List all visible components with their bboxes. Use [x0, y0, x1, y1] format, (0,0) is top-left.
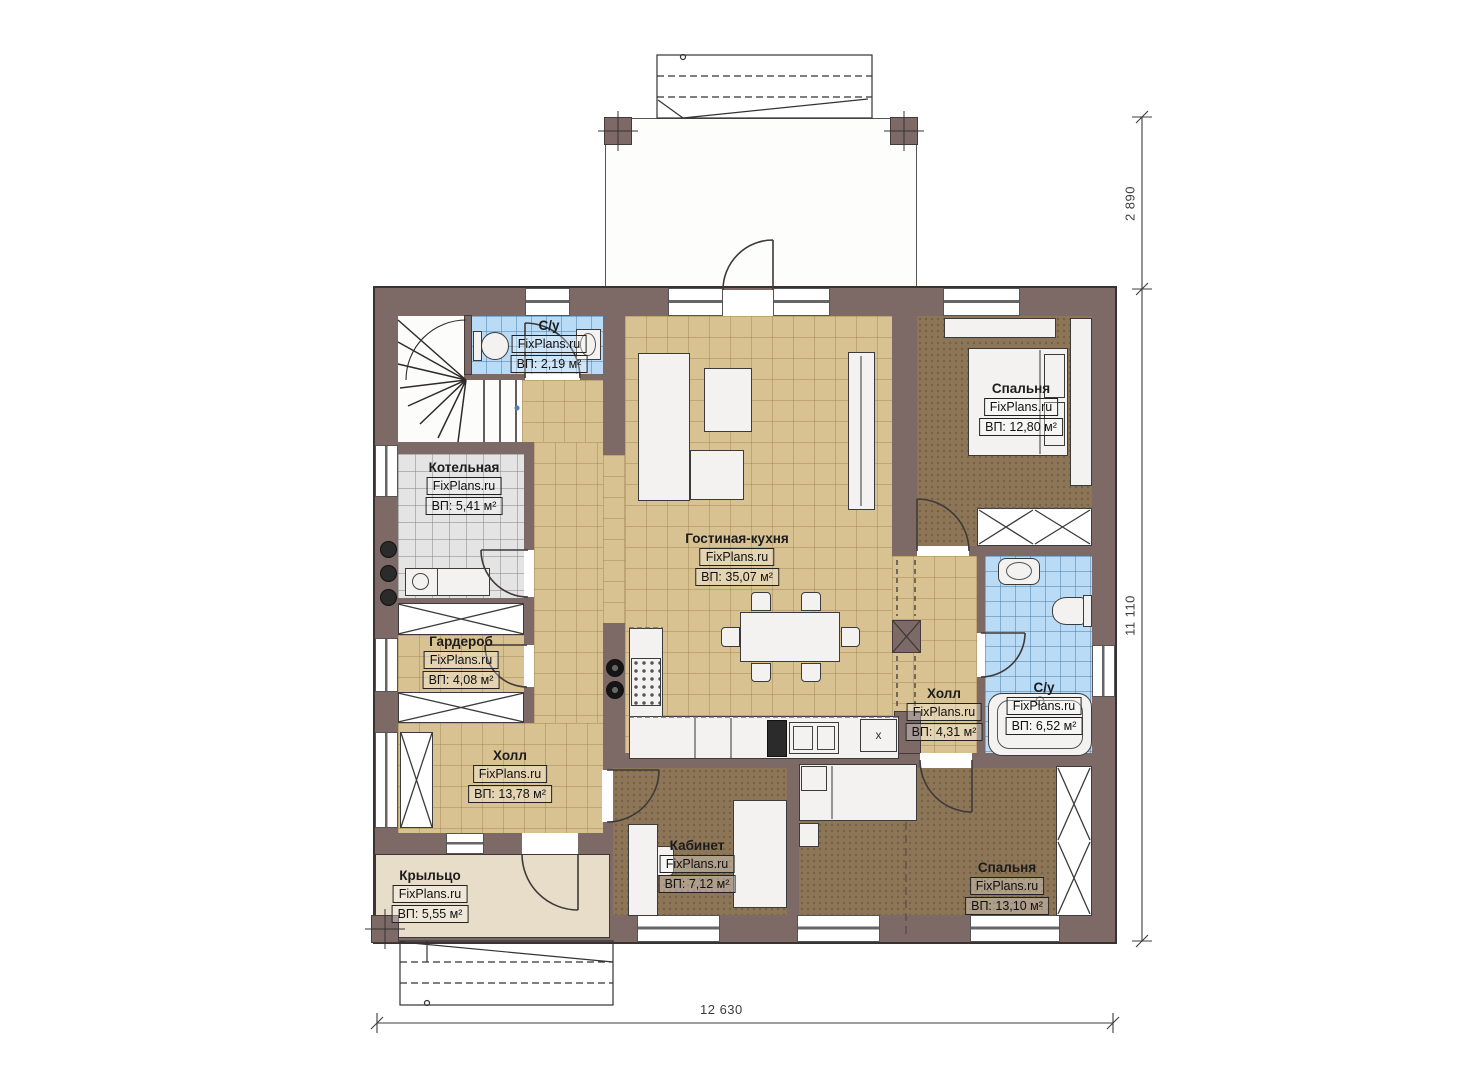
area-box: ВП: 4,08 м² — [423, 671, 500, 689]
area-box: ВП: 5,41 м² — [426, 497, 503, 515]
living-west-opening-floor — [603, 455, 625, 623]
wardrobe — [1056, 766, 1092, 916]
room-name: С/у — [538, 318, 559, 333]
terrace-floor — [605, 118, 917, 288]
wall-wc-top-left — [465, 316, 471, 374]
window — [797, 915, 880, 942]
dishwasher — [767, 720, 787, 757]
room-name: Гардероб — [429, 634, 493, 649]
dining-table — [740, 612, 840, 662]
sofa-corner — [690, 450, 744, 500]
toilet — [481, 332, 509, 360]
area-box: ВП: 6,52 м² — [1006, 717, 1083, 735]
brand-box: FixPlans.ru — [427, 477, 502, 495]
window — [1092, 645, 1115, 697]
boiler-pipe — [380, 589, 397, 606]
door-opening-bedroom-bottom — [920, 753, 972, 768]
room-name: Спальня — [978, 860, 1036, 875]
chair — [721, 627, 740, 647]
boiler-pipe — [380, 565, 397, 582]
area-box: ВП: 35,07 м² — [695, 568, 779, 586]
counter-divider — [437, 569, 438, 595]
room-name: Спальня — [992, 381, 1050, 396]
desk — [628, 824, 658, 916]
room-label-porch: Крыльцо FixPlans.ru ВП: 5,55 м² — [392, 868, 469, 923]
area-box: ВП: 13,78 м² — [468, 785, 552, 803]
terrace-column-left — [605, 118, 631, 144]
brand-box: FixPlans.ru — [1007, 697, 1082, 715]
terrace-steps — [657, 55, 872, 119]
sink-drainer — [817, 726, 835, 750]
corridor-floor — [522, 380, 603, 442]
room-name: Котельная — [429, 460, 500, 475]
door-opening-terrace — [723, 290, 773, 316]
area-box: ВП: 7,12 м² — [659, 875, 736, 893]
room-name: С/у — [1033, 680, 1054, 695]
nightstand — [799, 823, 819, 847]
room-label-hall-left: Холл FixPlans.ru ВП: 13,78 м² — [468, 748, 552, 803]
terrace-column-right — [891, 118, 917, 144]
brand-box: FixPlans.ru — [970, 877, 1045, 895]
cabinet — [944, 318, 1056, 338]
sink-basin — [793, 726, 813, 750]
window — [375, 445, 398, 497]
brand-box: FixPlans.ru — [512, 335, 587, 353]
window — [525, 288, 570, 316]
room-name: Крыльцо — [399, 868, 460, 883]
coffee-table — [704, 368, 752, 432]
brand-box: FixPlans.ru — [660, 855, 735, 873]
window — [375, 732, 398, 828]
door-opening-office — [602, 770, 613, 822]
kitchen-counter — [629, 716, 899, 759]
window — [773, 288, 830, 316]
window — [970, 915, 1060, 942]
toilet-tank — [1083, 595, 1092, 627]
room-label-boiler: Котельная FixPlans.ru ВП: 5,41 м² — [426, 460, 503, 515]
sink-bowl — [1006, 562, 1032, 580]
dimension-label-bottom: 12 630 — [700, 1002, 743, 1017]
room-name: Гостиная-кухня — [685, 531, 788, 546]
chair — [801, 663, 821, 682]
brand-box: FixPlans.ru — [393, 885, 468, 903]
brand-box: FixPlans.ru — [473, 765, 548, 783]
hall-closet — [400, 732, 433, 828]
stair-run-floor — [464, 380, 522, 442]
chair — [801, 592, 821, 611]
chair — [841, 627, 860, 647]
column-living-hall — [893, 621, 920, 652]
pillow — [801, 766, 827, 791]
door-opening-wc-top — [525, 374, 580, 380]
toilet — [1052, 597, 1084, 625]
wardrobe — [977, 508, 1092, 546]
stove-burner — [606, 659, 624, 677]
area-box: ВП: 5,55 м² — [392, 905, 469, 923]
room-label-bedroom-top: Спальня FixPlans.ru ВП: 12,80 м² — [979, 381, 1063, 436]
room-name: Кабинет — [670, 838, 725, 853]
door-opening-wc-right — [977, 633, 985, 677]
door-opening-wardrobe — [524, 645, 534, 687]
room-label-wc-right: С/у FixPlans.ru ВП: 6,52 м² — [1006, 680, 1083, 735]
dimension-label-upper-right: 2 890 — [1123, 172, 1138, 236]
door-opening-boiler — [524, 550, 534, 597]
kitchen-cabinet-x: x — [860, 719, 897, 752]
oven — [631, 658, 661, 706]
door-opening-front — [522, 833, 578, 854]
dimension-label-right: 11 110 — [1123, 584, 1138, 648]
x-cabinet-label: x — [876, 728, 882, 742]
floor-plan: x — [0, 0, 1473, 1080]
boiler-sink — [412, 573, 429, 590]
room-name: Холл — [927, 686, 961, 701]
room-label-wardrobe: Гардероб FixPlans.ru ВП: 4,08 м² — [423, 634, 500, 689]
window — [668, 288, 723, 316]
window — [375, 638, 398, 692]
stair-zone-floor — [398, 316, 464, 442]
brand-box: FixPlans.ru — [424, 651, 499, 669]
chair — [751, 592, 771, 611]
porch-steps — [400, 941, 613, 1006]
room-label-bedroom-bottom: Спальня FixPlans.ru ВП: 13,10 м² — [965, 860, 1049, 915]
sofa — [638, 353, 690, 501]
room-name: Холл — [493, 748, 527, 763]
office-sofa — [733, 800, 787, 908]
brand-box: FixPlans.ru — [907, 703, 982, 721]
chair — [751, 663, 771, 682]
closet-strip-lower — [398, 692, 524, 723]
area-box: ВП: 12,80 м² — [979, 418, 1063, 436]
brand-box: FixPlans.ru — [700, 548, 775, 566]
area-box: ВП: 13,10 м² — [965, 897, 1049, 915]
stove-burner — [606, 681, 624, 699]
area-box: ВП: 2,19 м² — [511, 355, 588, 373]
room-label-wc-top: С/у FixPlans.ru ВП: 2,19 м² — [511, 318, 588, 373]
tv-stand — [848, 352, 875, 510]
wardrobe-cabinet — [1070, 318, 1092, 486]
area-box: ВП: 4,31 м² — [906, 723, 983, 741]
room-label-hall-right: Холл FixPlans.ru ВП: 4,31 м² — [906, 686, 983, 741]
window — [637, 915, 720, 942]
window — [446, 833, 484, 854]
closet-strip-upper — [398, 603, 524, 635]
boiler-pipe — [380, 541, 397, 558]
brand-box: FixPlans.ru — [984, 398, 1059, 416]
door-opening-bedroom-top — [917, 546, 969, 556]
room-label-living-kitchen: Гостиная-кухня FixPlans.ru ВП: 35,07 м² — [685, 531, 788, 586]
window — [943, 288, 1020, 316]
room-label-office: Кабинет FixPlans.ru ВП: 7,12 м² — [659, 838, 736, 893]
